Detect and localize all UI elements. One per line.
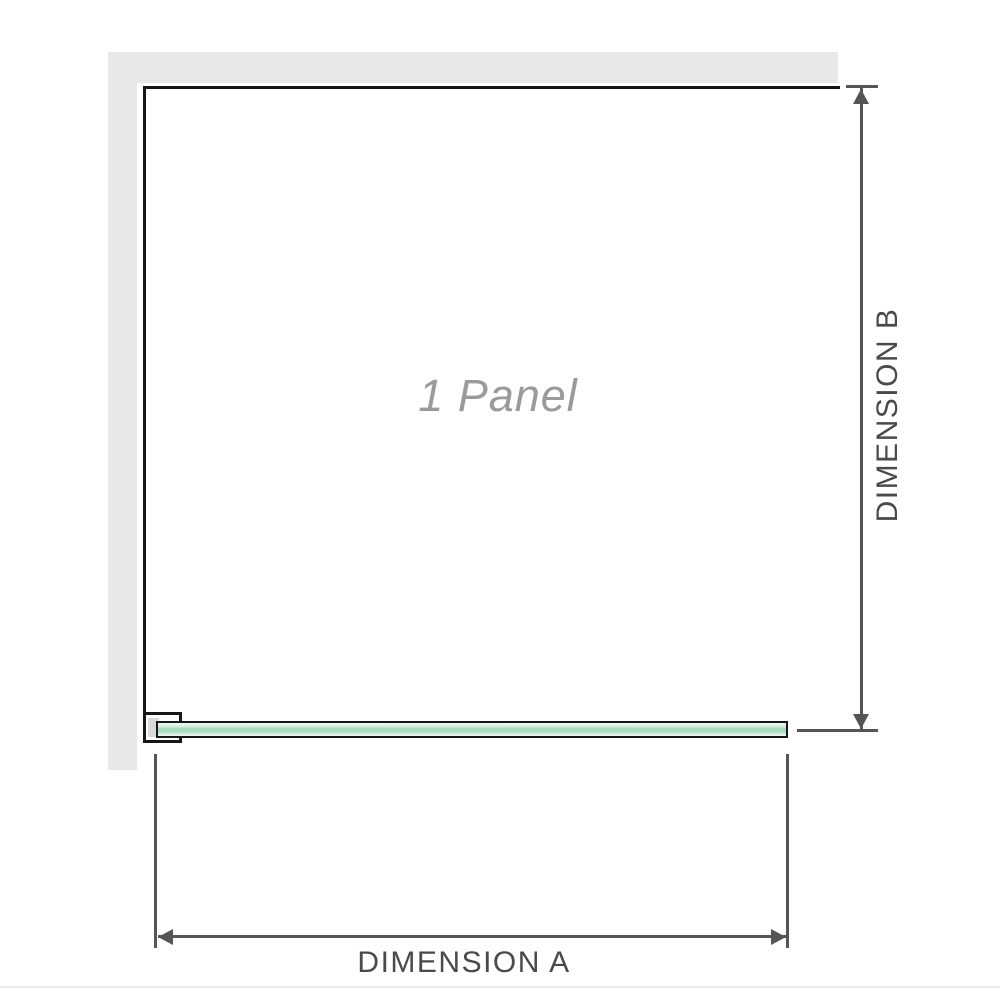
dimension-a-right-extension-line xyxy=(786,754,789,948)
wall-top xyxy=(108,52,838,83)
arrow-right-icon xyxy=(771,929,786,945)
enclosure-top-edge xyxy=(143,86,840,89)
dimension-b-label: DIMENSION B xyxy=(871,308,905,523)
enclosure-left-edge xyxy=(143,86,146,714)
panel-dimension-diagram: 1 Panel DIMENSION B DIMENSION A xyxy=(0,0,1000,1000)
dimension-a-label: DIMENSION A xyxy=(357,946,570,980)
wall-left xyxy=(108,52,137,770)
page-bottom-rule xyxy=(0,986,1000,988)
dimension-a-left-extension-line xyxy=(154,754,157,948)
arrow-left-icon xyxy=(158,929,173,945)
dimension-b-bottom-tick xyxy=(797,729,878,732)
arrow-down-icon xyxy=(853,714,869,729)
panel-count-label: 1 Panel xyxy=(418,370,578,422)
arrow-up-icon xyxy=(853,89,869,104)
dimension-a-line xyxy=(158,935,786,938)
dimension-b-line xyxy=(860,88,863,730)
glass-panel xyxy=(156,721,788,738)
